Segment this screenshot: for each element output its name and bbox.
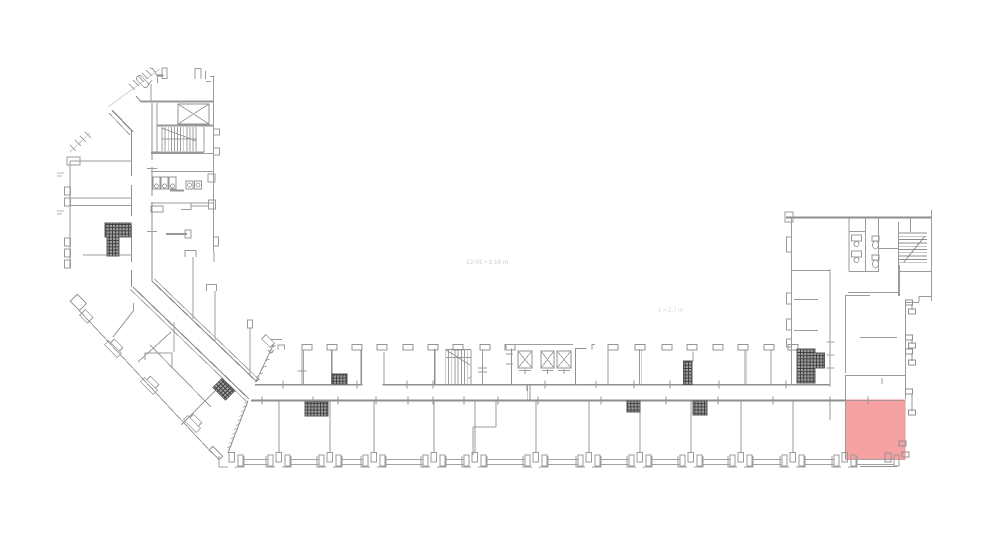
svg-text:1 = 2.7 m: 1 = 2.7 m [658,308,683,314]
svg-text:12-01 • 3.16 m: 12-01 • 3.16 m [466,259,508,266]
